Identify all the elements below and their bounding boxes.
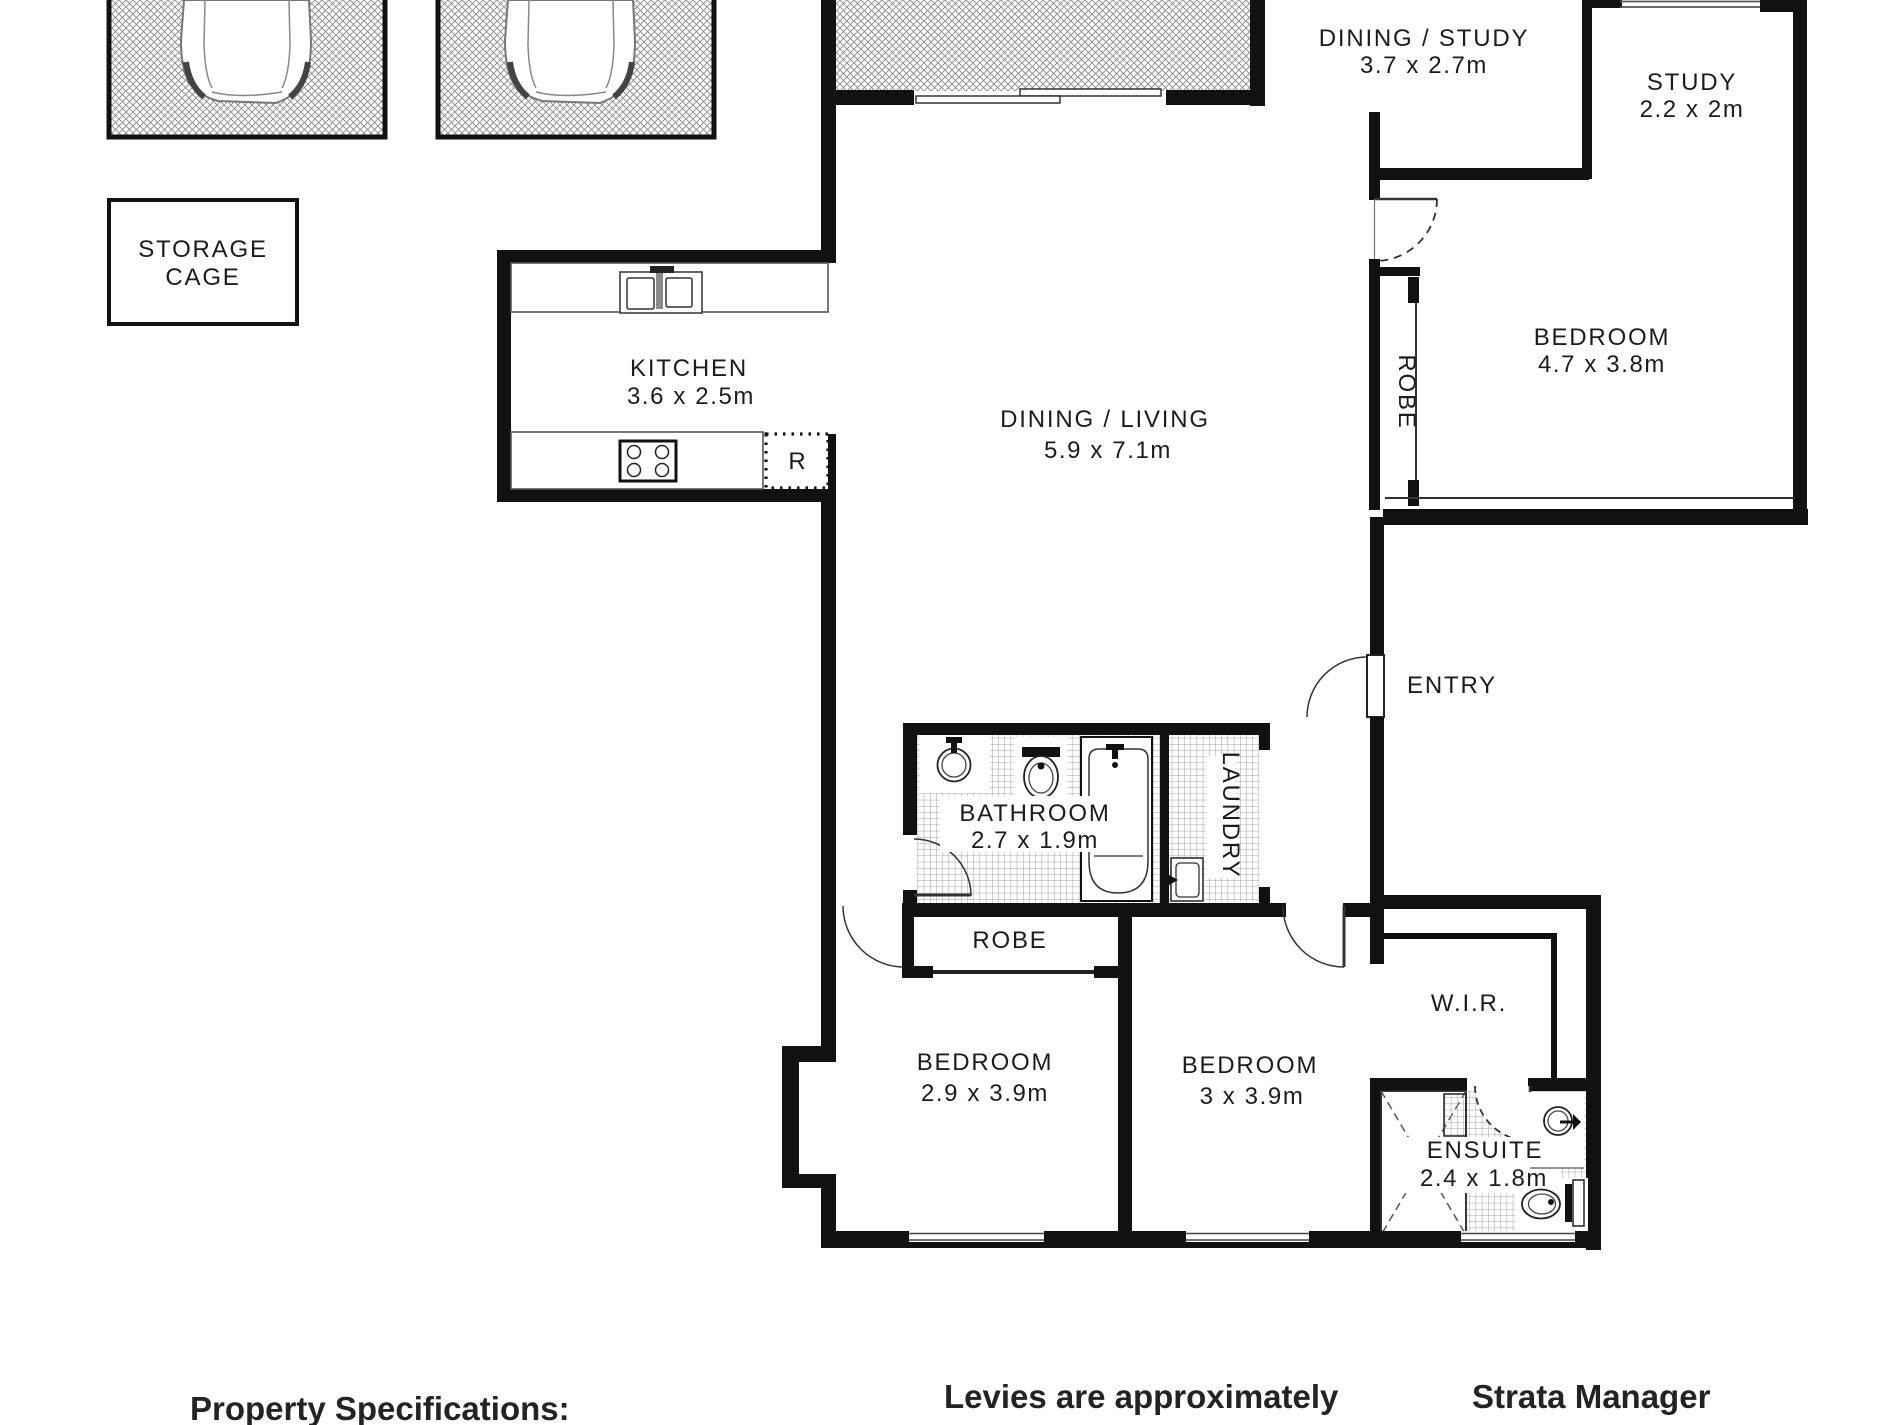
svg-text:KITCHEN: KITCHEN	[630, 355, 748, 382]
svg-text:BEDROOM: BEDROOM	[917, 1049, 1054, 1076]
svg-text:2.4 x 1.8m: 2.4 x 1.8m	[1420, 1165, 1548, 1192]
svg-text:2.9 x 3.9m: 2.9 x 3.9m	[921, 1080, 1049, 1107]
svg-text:LAUNDRY: LAUNDRY	[1217, 752, 1244, 879]
svg-text:3.7 x 2.7m: 3.7 x 2.7m	[1360, 52, 1488, 79]
svg-text:DINING / STUDY: DINING / STUDY	[1319, 25, 1530, 52]
svg-text:DINING / LIVING: DINING / LIVING	[1000, 406, 1210, 433]
svg-text:2.2 x 2m: 2.2 x 2m	[1640, 96, 1745, 123]
svg-text:CAGE: CAGE	[165, 264, 240, 291]
svg-text:R: R	[788, 448, 807, 475]
svg-text:3 x 3.9m: 3 x 3.9m	[1200, 1083, 1305, 1110]
svg-text:ROBE: ROBE	[1393, 354, 1420, 429]
svg-text:4.7 x 3.8m: 4.7 x 3.8m	[1538, 351, 1666, 378]
svg-text:ROBE: ROBE	[972, 927, 1047, 954]
svg-text:2.7 x 1.9m: 2.7 x 1.9m	[971, 827, 1099, 854]
svg-text:BEDROOM: BEDROOM	[1534, 324, 1671, 351]
svg-text:STORAGE: STORAGE	[138, 236, 268, 263]
svg-text:5.9 x 7.1m: 5.9 x 7.1m	[1044, 437, 1172, 464]
svg-text:BEDROOM: BEDROOM	[1182, 1052, 1319, 1079]
svg-text:Strata Manager: Strata Manager	[1472, 1378, 1711, 1415]
svg-text:W.I.R.: W.I.R.	[1431, 990, 1507, 1017]
svg-text:STUDY: STUDY	[1647, 69, 1737, 96]
svg-text:Levies are approximately: Levies are approximately	[944, 1378, 1339, 1415]
svg-text:Property Specifications:: Property Specifications:	[190, 1390, 570, 1425]
svg-text:BATHROOM: BATHROOM	[959, 800, 1110, 827]
svg-text:3.6 x 2.5m: 3.6 x 2.5m	[627, 383, 755, 410]
svg-text:ENSUITE: ENSUITE	[1427, 1137, 1544, 1164]
svg-text:ENTRY: ENTRY	[1407, 672, 1497, 699]
